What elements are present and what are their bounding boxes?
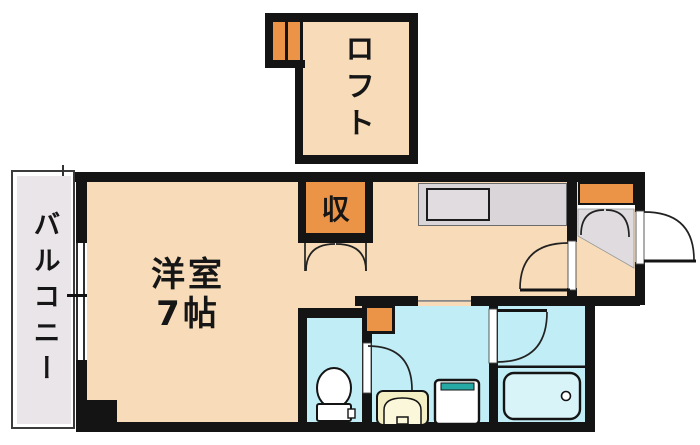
balcony-label: バルコニー xyxy=(17,176,71,424)
bathtub-ledge xyxy=(498,366,585,369)
room-entry-door-frame xyxy=(568,241,576,290)
bathroom-door-swing xyxy=(497,312,547,362)
room-entry-door-leaf xyxy=(520,289,570,292)
bathroom-door-frame xyxy=(489,309,497,363)
loft-label: ロフト xyxy=(303,22,409,155)
closet-label: 収 xyxy=(306,182,365,233)
toilet xyxy=(317,368,351,408)
washbasin-bowl xyxy=(384,398,421,424)
main-room-label-line1: 洋室 xyxy=(128,256,248,295)
main-room-label-line2: 7帖 xyxy=(128,295,248,334)
entrance-door-leaf xyxy=(644,260,696,263)
toilet-door-frame xyxy=(363,343,371,393)
washing-machine-top xyxy=(441,383,474,390)
floorplan: バルコニー ロフト 収 洋室 7帖 xyxy=(0,0,700,445)
toilet-tank xyxy=(317,404,351,421)
toilet-door-swing xyxy=(368,346,412,390)
bathroom-door-leaf xyxy=(497,309,547,312)
main-room-label: 洋室 7帖 xyxy=(128,256,248,334)
bathtub-drain xyxy=(562,392,571,401)
room-entry-door-swing xyxy=(520,243,568,289)
toilet-handle xyxy=(348,409,355,418)
closet-folding-doors xyxy=(306,244,366,271)
entrance-door-swing xyxy=(644,212,694,260)
entrance-door-frame xyxy=(636,211,644,264)
washroom-threshold xyxy=(418,300,471,302)
